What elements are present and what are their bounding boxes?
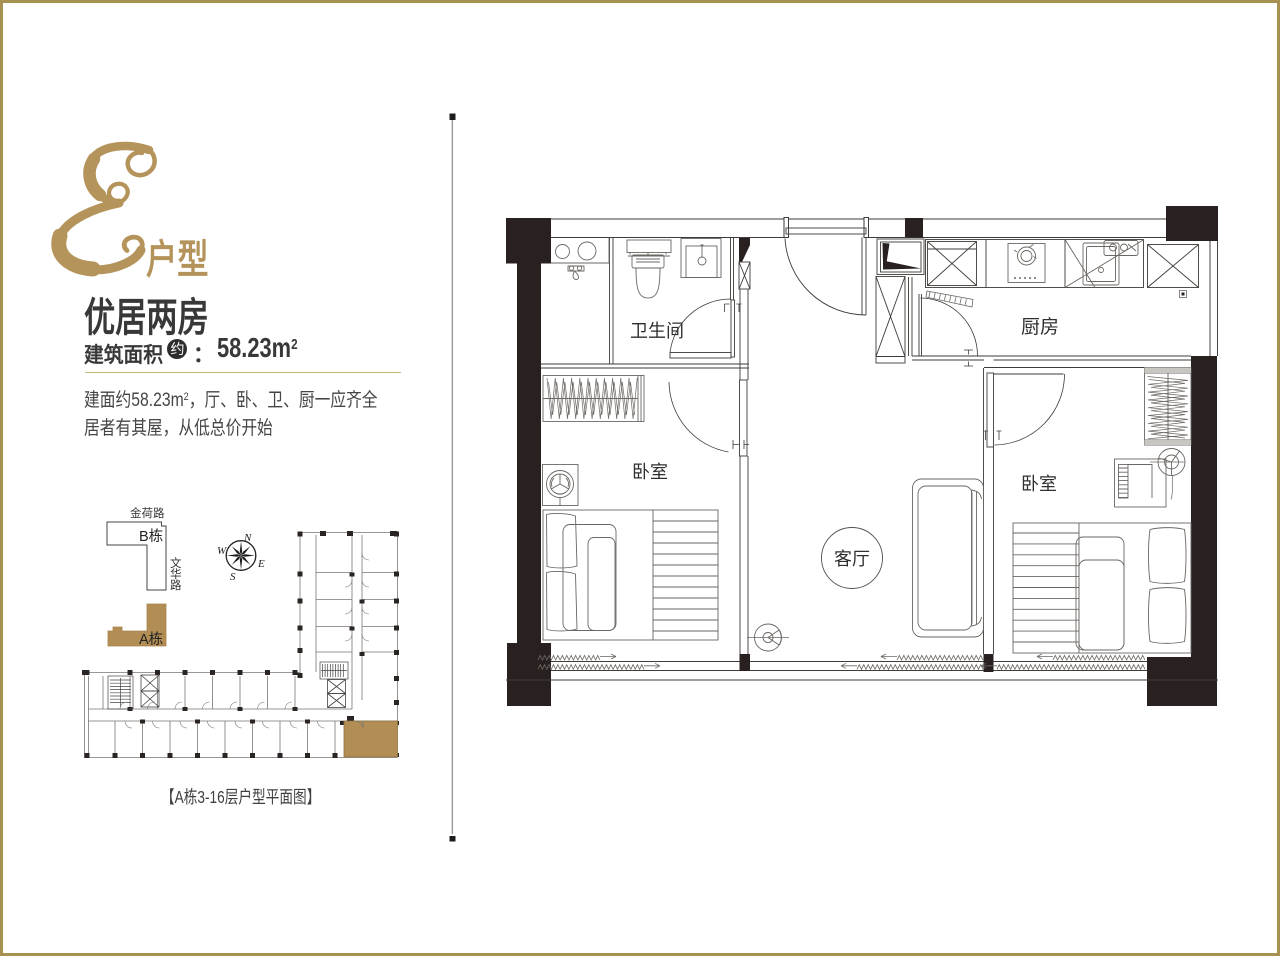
svg-text:E: E — [257, 558, 265, 570]
svg-text:A栋: A栋 — [139, 630, 163, 648]
svg-text:卧室: 卧室 — [1021, 474, 1057, 494]
svg-text:N: N — [243, 532, 252, 544]
svg-text:卫生间: 卫生间 — [630, 321, 684, 341]
svg-text:客厅: 客厅 — [834, 549, 870, 569]
svg-text:金荷路: 金荷路 — [130, 506, 165, 520]
svg-text:厨房: 厨房 — [1021, 316, 1059, 338]
svg-text:卧室: 卧室 — [632, 462, 668, 482]
svg-text:华: 华 — [170, 567, 182, 581]
svg-text:W: W — [217, 545, 227, 557]
svg-text:文: 文 — [170, 556, 182, 570]
svg-text:B栋: B栋 — [139, 527, 163, 545]
svg-text:路: 路 — [170, 578, 182, 592]
svg-text:S: S — [230, 571, 236, 583]
